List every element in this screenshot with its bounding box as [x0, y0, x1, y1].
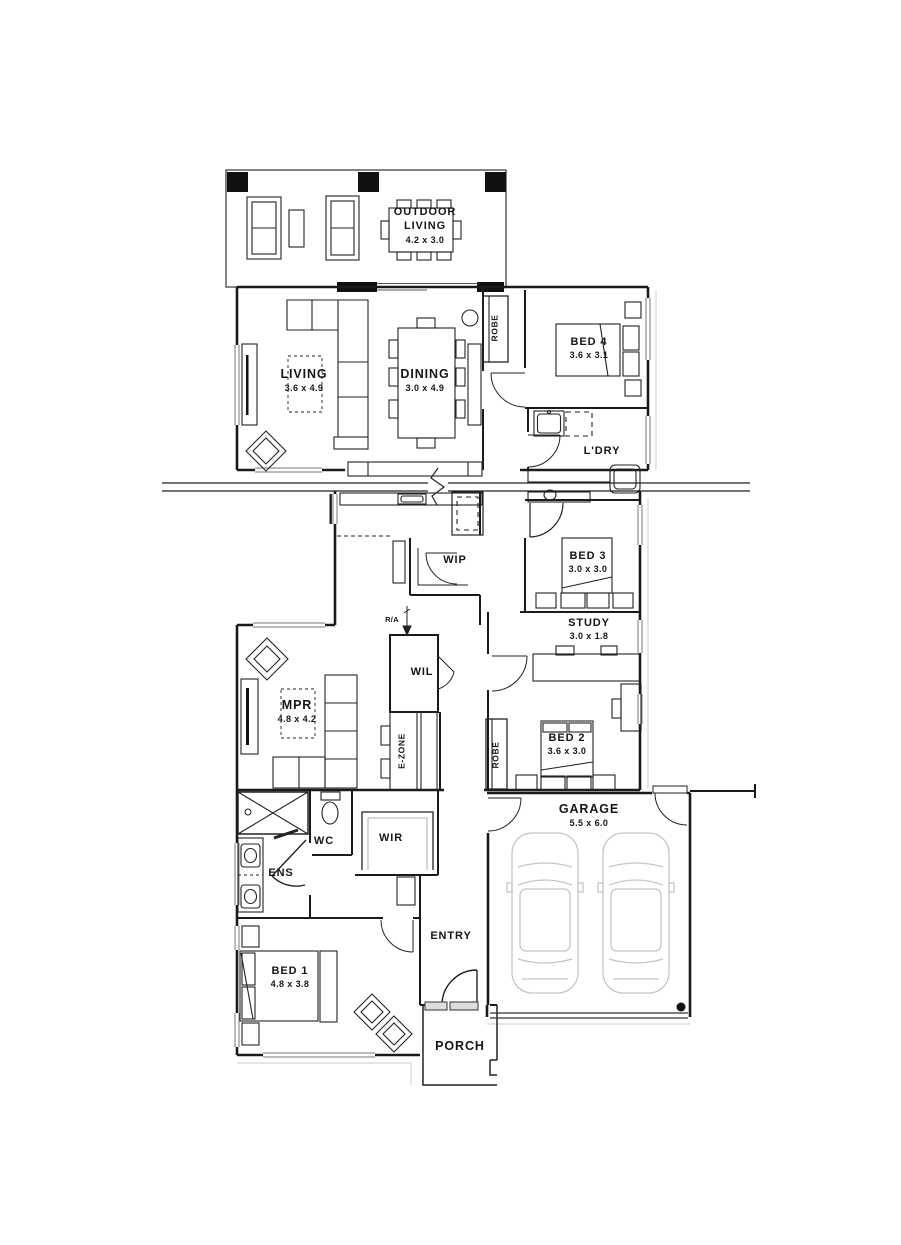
room-label-ezone: E-ZONE [396, 733, 407, 769]
floor-waste-symbol [677, 1003, 686, 1012]
room-label-bed1: BED 1 4.8 x 3.8 [271, 964, 310, 991]
car-left [507, 833, 583, 993]
room-label-wir: WIR [379, 831, 403, 845]
room-dims: 4.8 x 4.2 [278, 714, 317, 726]
room-name: OUTDOOR LIVING [386, 205, 464, 234]
room-name: ENS [268, 866, 293, 880]
room-name: BED 3 [569, 549, 608, 563]
break-line [162, 468, 750, 505]
room-dims: 5.5 x 6.0 [559, 818, 619, 830]
room-name: WIP [443, 553, 466, 567]
room-label-robe-hall: ROBE [489, 315, 500, 342]
return-air-symbol [403, 606, 411, 635]
room-label-living: LIVING 3.6 x 4.9 [280, 366, 327, 395]
garage-door [490, 1013, 688, 1018]
room-name: ROBE [490, 742, 501, 769]
room-label-mpr: MPR 4.8 x 4.2 [278, 697, 317, 726]
room-name: MPR [278, 697, 317, 713]
room-name: BED 1 [271, 964, 310, 978]
room-label-porch: PORCH [435, 1038, 485, 1054]
room-name: BED 2 [548, 731, 587, 745]
room-dims: 3.0 x 1.8 [568, 631, 610, 643]
room-label-study: STUDY 3.0 x 1.8 [568, 616, 610, 643]
room-dims: 3.6 x 3.0 [548, 746, 587, 758]
doors [272, 373, 687, 1005]
room-label-dining: DINING 3.0 x 4.9 [400, 366, 449, 395]
room-name: GARAGE [559, 801, 619, 817]
room-name: WIL [411, 665, 434, 679]
room-name: WC [314, 834, 334, 848]
room-label-ldry: L'DRY [584, 444, 621, 458]
room-name: E-ZONE [396, 733, 407, 769]
room-name: ENTRY [430, 929, 471, 943]
room-name: DINING [400, 366, 449, 382]
room-dims: 3.6 x 4.9 [280, 383, 327, 395]
posts [227, 172, 506, 292]
room-name: ROBE [489, 315, 500, 342]
car-right [598, 833, 674, 993]
floor-plan: OUTDOOR LIVING 4.2 x 3.0 LIVING 3.6 x 4.… [0, 0, 901, 1245]
room-name: PORCH [435, 1038, 485, 1054]
room-label-wc: WC [314, 834, 334, 848]
room-dims: 4.2 x 3.0 [386, 235, 464, 247]
room-name: L'DRY [584, 444, 621, 458]
room-name: STUDY [568, 616, 610, 630]
room-name: BED 4 [570, 335, 609, 349]
room-dims: 3.6 x 3.1 [570, 350, 609, 362]
room-label-bed3: BED 3 3.0 x 3.0 [569, 549, 608, 576]
room-label-robe-bed2: ROBE [490, 742, 501, 769]
room-name: WIR [379, 831, 403, 845]
annotation-text: R/A [385, 615, 399, 625]
room-label-garage: GARAGE 5.5 x 6.0 [559, 801, 619, 830]
room-dims: 3.0 x 3.0 [569, 564, 608, 576]
room-label-ens: ENS [268, 866, 293, 880]
room-label-wip: WIP [443, 553, 466, 567]
room-label-bed2: BED 2 3.6 x 3.0 [548, 731, 587, 758]
return-air-label: R/A [385, 615, 399, 625]
room-dims: 3.0 x 4.9 [400, 383, 449, 395]
room-label-wil: WIL [411, 665, 434, 679]
room-label-outdoor-living: OUTDOOR LIVING 4.2 x 3.0 [386, 205, 464, 246]
cars [507, 833, 674, 993]
window-sill [330, 494, 332, 524]
room-label-entry: ENTRY [430, 929, 471, 943]
room-label-bed4: BED 4 3.6 x 3.1 [570, 335, 609, 362]
room-name: LIVING [280, 366, 327, 382]
floorplan-linework [0, 0, 901, 1245]
room-dims: 4.8 x 3.8 [271, 979, 310, 991]
